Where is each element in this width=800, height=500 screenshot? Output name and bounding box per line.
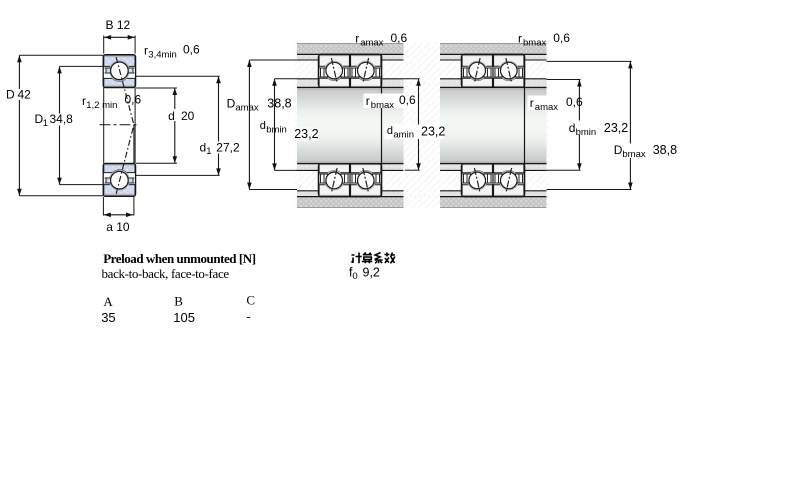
svg-text:amax: amax — [360, 37, 383, 48]
svg-text:23,2: 23,2 — [421, 125, 445, 139]
svg-text:bmax: bmax — [523, 37, 546, 48]
svg-text:0,6: 0,6 — [125, 92, 142, 106]
svg-text:0: 0 — [352, 271, 357, 282]
svg-text:a 10: a 10 — [106, 220, 130, 234]
svg-text:bmax: bmax — [622, 149, 645, 160]
svg-text:38,8: 38,8 — [653, 143, 677, 157]
svg-text:D: D — [614, 143, 623, 157]
svg-text:1: 1 — [206, 146, 211, 157]
svg-text:r: r — [530, 96, 534, 110]
svg-text:0,6: 0,6 — [391, 31, 408, 45]
svg-text:amax: amax — [235, 102, 258, 113]
svg-text:B 12: B 12 — [106, 18, 131, 32]
svg-text:r: r — [366, 94, 370, 108]
svg-text:d: d — [168, 109, 175, 123]
svg-text:back-to-back, face-to-face: back-to-back, face-to-face — [102, 266, 230, 281]
svg-text:0,6: 0,6 — [566, 95, 583, 109]
svg-text:d: d — [387, 125, 393, 137]
svg-text:C: C — [246, 293, 255, 308]
svg-text:105: 105 — [173, 310, 195, 325]
svg-text:20: 20 — [181, 109, 195, 123]
svg-text:1,2 min: 1,2 min — [86, 100, 117, 111]
svg-text:0,6: 0,6 — [399, 93, 416, 107]
svg-text:Preload when unmounted [N]: Preload when unmounted [N] — [103, 251, 256, 266]
svg-text:23,2: 23,2 — [604, 121, 628, 135]
svg-text:bmax: bmax — [371, 100, 394, 111]
svg-text:38,8: 38,8 — [267, 96, 291, 110]
svg-text:-: - — [246, 309, 250, 324]
svg-text:d: d — [200, 140, 207, 154]
svg-text:B: B — [174, 293, 183, 308]
svg-text:35: 35 — [101, 310, 115, 325]
svg-text:34,8: 34,8 — [50, 112, 74, 126]
svg-text:D: D — [227, 97, 236, 111]
svg-text:1: 1 — [43, 118, 48, 129]
svg-text:r: r — [518, 32, 522, 46]
svg-text:r: r — [355, 32, 359, 46]
svg-text:d: d — [569, 121, 576, 135]
svg-text:amin: amin — [393, 129, 414, 140]
svg-text:9,2: 9,2 — [363, 266, 380, 280]
svg-text:amax: amax — [535, 102, 558, 113]
svg-text:0,6: 0,6 — [183, 43, 200, 57]
svg-text:D: D — [6, 88, 15, 102]
svg-text:42: 42 — [18, 88, 32, 102]
svg-text:3,4min: 3,4min — [148, 50, 177, 61]
svg-text:23,2: 23,2 — [294, 127, 318, 141]
svg-text:A: A — [103, 294, 113, 309]
svg-text:0,6: 0,6 — [553, 31, 570, 45]
svg-text:bmin: bmin — [266, 125, 287, 136]
svg-text:d: d — [260, 120, 266, 132]
svg-text:bmin: bmin — [576, 127, 597, 138]
svg-text:27,2: 27,2 — [216, 140, 240, 154]
